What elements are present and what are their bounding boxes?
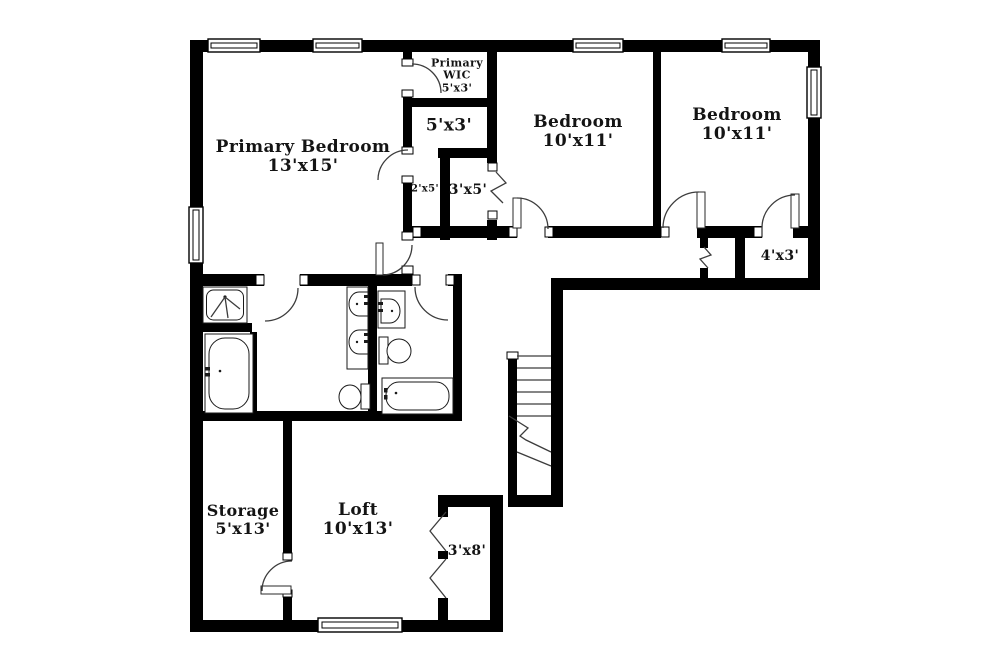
- room-label-primary-bedroom: Primary Bedroom 13'x15': [216, 138, 391, 176]
- accordion-door: [700, 247, 711, 268]
- room-label-storage: Storage 5'x13': [207, 502, 280, 538]
- room-label-closet-5x3: 5'x3': [426, 116, 472, 135]
- window: [313, 39, 362, 52]
- floor-plan: Primary Bedroom 13'x15' Primary WIC 5'x3…: [0, 0, 1000, 656]
- door-arc: [415, 287, 448, 320]
- window: [189, 207, 203, 263]
- shower-fixture: [203, 287, 247, 323]
- toilet-hall-bath: [379, 337, 411, 364]
- door-leaf: [513, 198, 521, 228]
- window: [722, 39, 770, 52]
- accordion-door: [491, 172, 506, 203]
- room-label-closet-3x5: 3'x5': [449, 183, 487, 199]
- door-leaf: [376, 243, 383, 275]
- bathtub-fixture-primary: [205, 334, 253, 413]
- door-leaf: [791, 194, 799, 228]
- door-arc: [265, 288, 298, 321]
- sink-hall-bath: [378, 291, 405, 328]
- window: [318, 618, 402, 632]
- door-arc: [517, 198, 548, 229]
- room-label-bedroom-left: Bedroom 10'x11': [533, 113, 623, 151]
- room-label-closet-4x3: 4'x3': [761, 249, 799, 265]
- stair-break-line: [517, 452, 551, 466]
- room-label-hall-2x5: 2'x5': [411, 183, 439, 194]
- toilet-primary: [339, 384, 370, 409]
- door-leaf: [261, 586, 291, 594]
- door-arc: [762, 195, 795, 228]
- bathtub-fixture-hall: [382, 378, 453, 414]
- room-label-bedroom-right: Bedroom 10'x11': [692, 106, 782, 144]
- stair-treads: [517, 356, 551, 416]
- window: [573, 39, 623, 52]
- room-label-loft: Loft 10'x13': [323, 501, 394, 539]
- accordion-door: [430, 512, 446, 551]
- window: [208, 39, 260, 52]
- accordion-door: [430, 559, 446, 598]
- door-arc: [663, 192, 699, 228]
- floor-plan-drawing: [0, 0, 1000, 656]
- vanity-sinks-primary: [347, 287, 369, 369]
- room-label-primary-wic: Primary WIC 5'x3': [421, 57, 493, 94]
- room-label-closet-3x8: 3'x8': [448, 544, 486, 560]
- window: [807, 67, 821, 118]
- door-leaf: [697, 192, 705, 228]
